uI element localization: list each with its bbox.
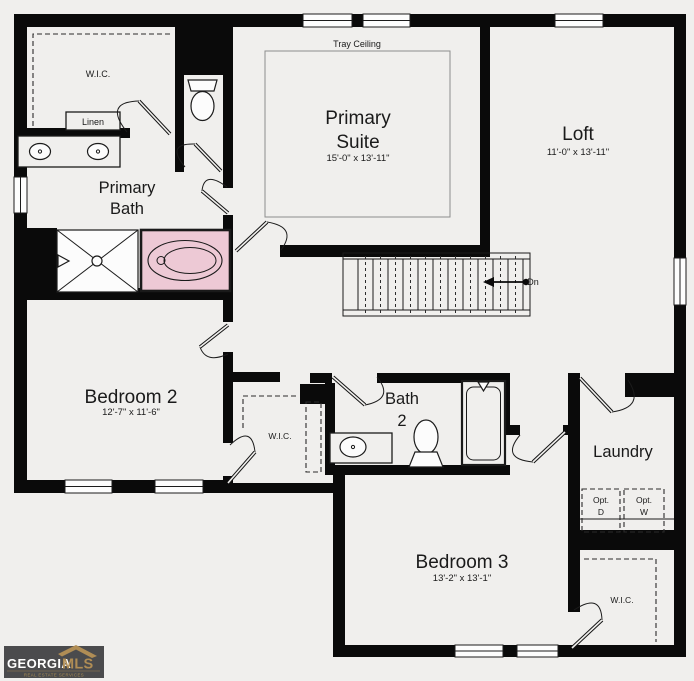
primary-suite-label-1: Primary xyxy=(325,108,391,129)
primary-wic-label: W.I.C. xyxy=(86,69,111,79)
bedroom2-wic-label: W.I.C. xyxy=(268,431,291,441)
primary-suite-dims: 15'-0" x 13'-11" xyxy=(326,153,389,164)
floor-plan: W.I.C. Linen Primary Bath Tray Ceiling P… xyxy=(0,0,694,681)
bath2-vanity xyxy=(330,433,392,463)
georgia-mls-logo: GEORGIA MLS REAL ESTATE SERVICES xyxy=(4,645,104,678)
bedroom3-dims: 13'-2" x 13'-1" xyxy=(433,573,491,584)
bedroom3-wic-label: W.I.C. xyxy=(610,595,633,605)
bedroom2-label: Bedroom 2 xyxy=(85,387,178,408)
tray-ceiling-label: Tray Ceiling xyxy=(333,39,381,49)
opt-dryer-label-2: D xyxy=(598,507,604,517)
bedroom2-dims: 12'-7" x 11'-6" xyxy=(102,407,160,418)
bedroom3-label: Bedroom 3 xyxy=(416,552,509,573)
floor-plan-drawing: W.I.C. Linen Primary Bath Tray Ceiling P… xyxy=(0,0,694,681)
primary-bath-label-2: Bath xyxy=(110,200,144,218)
opt-dryer-label-1: Opt. xyxy=(593,495,609,505)
bath2-tub xyxy=(462,381,505,465)
primary-bath-label-1: Primary xyxy=(99,179,157,197)
bath2-label-1: Bath xyxy=(385,390,419,408)
primary-suite-label-2: Suite xyxy=(336,132,379,153)
laundry-label: Laundry xyxy=(593,443,653,461)
logo-brand-secondary: MLS xyxy=(62,657,94,673)
primary-vanity xyxy=(18,136,120,167)
loft-label: Loft xyxy=(562,124,594,145)
primary-tub xyxy=(141,230,230,291)
opt-washer-label-1: Opt. xyxy=(636,495,652,505)
opt-washer-label-2: W xyxy=(640,507,648,517)
loft-dims: 11'-0" x 13'-11" xyxy=(547,147,609,158)
bath2-label-2: 2 xyxy=(397,412,406,430)
logo-tagline: REAL ESTATE SERVICES xyxy=(24,673,84,678)
primary-shower xyxy=(57,230,138,292)
plan-background xyxy=(0,0,694,681)
stairs-down-label: Dn xyxy=(527,277,539,287)
linen-label: Linen xyxy=(82,117,104,127)
